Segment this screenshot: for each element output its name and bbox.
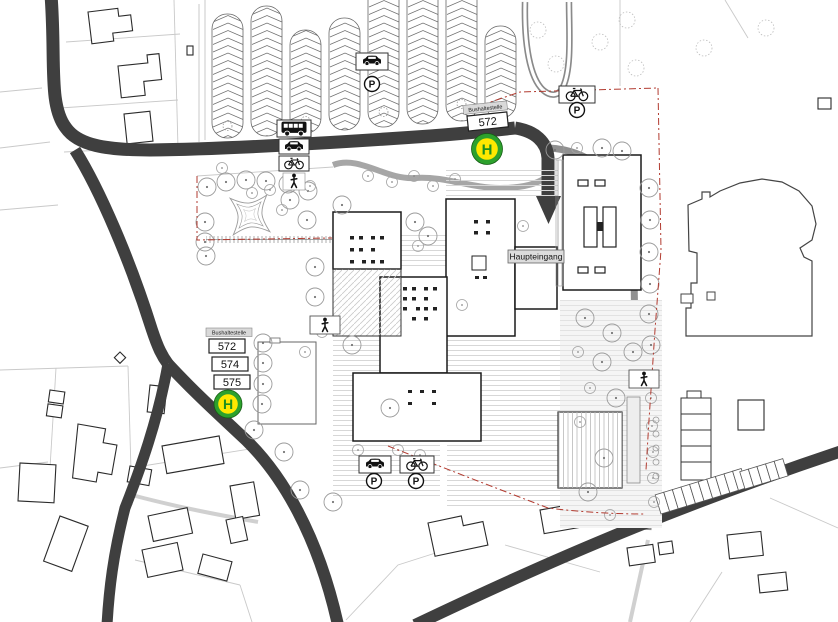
hairpin-path — [525, 2, 570, 95]
west-road — [75, 150, 168, 364]
transport-icon-stack — [277, 120, 311, 190]
east-building — [686, 179, 816, 336]
bus-stop-h-icon: H — [214, 390, 242, 418]
parking-p-label: P — [413, 477, 420, 488]
west-road-south — [107, 364, 168, 622]
bus-stop-caption: Bushaltestelle — [212, 331, 246, 337]
h-sign-label: H — [482, 142, 493, 159]
parking-p-label: P — [574, 106, 581, 117]
bus-stop-h-icon: H — [472, 134, 503, 165]
parking-p-label: P — [371, 477, 378, 488]
bus-line-label: 575 — [223, 377, 241, 389]
bike-parking-sign-topright: P — [559, 86, 595, 118]
parking-p-label: P — [369, 80, 376, 91]
main-entrance: Haupteingang — [508, 250, 564, 263]
h-sign-label: H — [223, 396, 233, 412]
pedestrian-marker-east — [629, 370, 659, 388]
pedestrian-marker-west — [310, 316, 340, 334]
bus-line-label: 574 — [221, 359, 239, 371]
site-plan: P P P P — [0, 0, 838, 622]
main-entrance-label: Haupteingang — [510, 252, 563, 262]
site-plan-svg: P P P P — [0, 0, 838, 622]
bus-line-label: 572 — [478, 116, 498, 130]
bus-line-label: 572 — [218, 341, 236, 353]
